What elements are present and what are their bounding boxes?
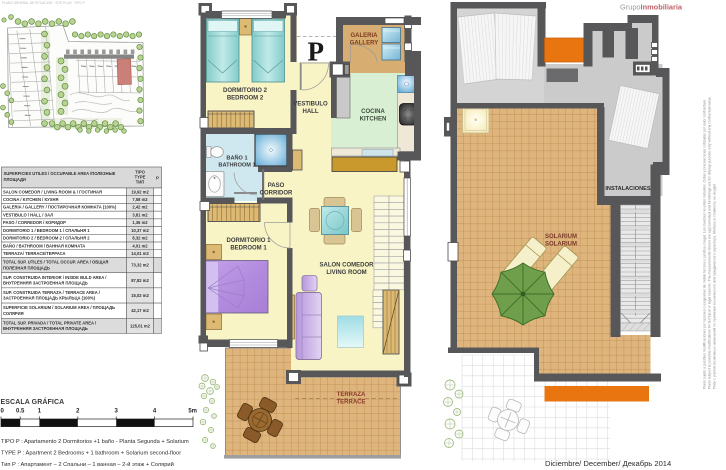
svg-text:BATHROOM 1: BATHROOM 1 (218, 163, 255, 169)
svg-text:СОЛЯРИЯ: СОЛЯРИЯ (3, 311, 24, 316)
svg-text:SUP. CONSTRUIDA INTERIOR / INS: SUP. CONSTRUIDA INTERIOR / INSIDE BULD A… (3, 275, 107, 280)
svg-text:4: 4 (153, 409, 157, 415)
svg-text:TYPE P : Apartment 2 Bedrooms: TYPE P : Apartment 2 Bedrooms + 1 bathro… (1, 451, 181, 457)
svg-text:ESCALA GRÁFICA: ESCALA GRÁFICA (1, 397, 65, 406)
svg-text:0.5: 0.5 (16, 409, 25, 415)
svg-text:TOTAL SUP. UTILES / TOTAL OCCU: TOTAL SUP. UTILES / TOTAL OCCUP. AREA / … (3, 260, 108, 265)
svg-text:BEDROOM 1: BEDROOM 1 (230, 246, 267, 252)
svg-text:HALL: HALL (303, 109, 319, 115)
svg-text:BEDROOM 2: BEDROOM 2 (227, 96, 264, 102)
svg-text:14,01 m2: 14,01 m2 (131, 251, 149, 256)
svg-text:4,01 m2: 4,01 m2 (132, 243, 148, 248)
svg-text:SUPERFICIE SOLARIUM / SOLARI: SUPERFICIE SOLARIUM / SOLARIUM AREA / ПЛ… (3, 305, 115, 310)
svg-text:PLANO GENERAL DE SITUACION · S: PLANO GENERAL DE SITUACION · SITE PLAN ·… (2, 1, 85, 5)
svg-text:ВНУТРЕННЯЯ ЗАСТРОЕННАЯ ПЛОЩАДЬ: ВНУТРЕННЯЯ ЗАСТРОЕННАЯ ПЛОЩАДЬ (3, 326, 88, 331)
svg-text:PASO: PASO (268, 183, 285, 189)
svg-text:1,36 m2: 1,36 m2 (132, 220, 148, 225)
svg-text:2,42 m2: 2,42 m2 (132, 205, 148, 210)
svg-text:Plans subject to possible modi: Plans subject to possible modifications … (708, 96, 712, 389)
svg-text:DORMITORIO 2 / BEDROOM 2 / СПА: DORMITORIO 2 / BEDROOM 2 / СПАЛЬНЯ 2 (3, 236, 90, 241)
svg-text:SALON COMEDOR / LIVING ROOM &: SALON COMEDOR / LIVING ROOM & / ГОСТИНАЯ (3, 189, 102, 194)
svg-text:ТИП: ТИП (136, 180, 145, 185)
svg-text:VESTIBULO / HALL / ЗАЛ: VESTIBULO / HALL / ЗАЛ (3, 212, 53, 217)
svg-text:BAÑO 1: BAÑO 1 (226, 155, 247, 162)
svg-text:Diciembre/ December/ Декабрь: Diciembre/ December/ Декабрь 2014 (545, 459, 671, 468)
svg-text:ПОЛЕЗНАЯ ПЛОЩАДЬ: ПОЛЕЗНАЯ ПЛОЩАДЬ (3, 265, 50, 270)
svg-text:ПЛОЩАДИ: ПЛОЩАДИ (4, 177, 26, 182)
svg-text:15,02 m2: 15,02 m2 (131, 293, 149, 298)
svg-text:P: P (308, 37, 325, 67)
svg-text:DORMITORIO 2: DORMITORIO 2 (223, 88, 268, 94)
svg-text:TIPO P : Apartamento 2 Dormito: TIPO P : Apartamento 2 Dormitorios +1 ba… (1, 439, 189, 445)
svg-text:Plano sujeto a posibles modifi: Plano sujeto a posibles modificaciones p… (703, 99, 707, 389)
svg-text:1: 1 (38, 409, 42, 415)
svg-text:PASO / CORREDOR / КОРИДОР: PASO / CORREDOR / КОРИДОР (3, 220, 66, 225)
svg-text:CORRIDOR: CORRIDOR (260, 191, 293, 197)
svg-text:GALLERY: GALLERY (350, 41, 378, 47)
svg-text:GrupoInmobiliaria: GrupoInmobiliaria (620, 3, 683, 12)
svg-text:План с учетом возможных измене: План с учетом возможных изменений по при… (713, 183, 717, 389)
svg-text:125,01 m2: 125,01 m2 (130, 323, 150, 328)
svg-text:SOLARIUM: SOLARIUM (545, 242, 577, 248)
svg-text:Тип P : Апартамент – 2 Спальни: Тип P : Апартамент – 2 Спальни – 1 ванна… (1, 461, 174, 468)
svg-text:8,32 m2: 8,32 m2 (132, 236, 148, 241)
svg-text:P: P (156, 176, 159, 181)
svg-text:5m: 5m (188, 409, 197, 415)
svg-text:73,32 m2: 73,32 m2 (131, 263, 149, 268)
svg-text:BAÑO / BATHROOM / ВАННАЯ КОМ: BAÑO / BATHROOM / ВАННАЯ КОМНАТА (3, 243, 85, 248)
svg-text:VESTIBULO: VESTIBULO (293, 102, 328, 108)
svg-text:ЗАСТРОЕННАЯ ПЛОЩАДЬ КРЫЛЬЦА (1: ЗАСТРОЕННАЯ ПЛОЩАДЬ КРЫЛЬЦА (100%) (3, 296, 96, 301)
svg-text:GALERIA / GALLERY / ПОСТИРОЧНА: GALERIA / GALLERY / ПОСТИРОЧНАЯ КОМНАТА … (3, 205, 117, 210)
svg-text:19,92 m2: 19,92 m2 (131, 189, 149, 194)
svg-text:LIVING ROOM: LIVING ROOM (326, 270, 366, 276)
svg-text:42,17 m2: 42,17 m2 (131, 308, 149, 313)
svg-text:KITCHEN: KITCHEN (360, 117, 387, 123)
svg-text:7,58 m2: 7,58 m2 (132, 197, 148, 202)
svg-text:0: 0 (1, 409, 5, 415)
svg-text:INSTALACIONES: INSTALACIONES (605, 186, 651, 192)
svg-text:COCINA / KITCHEN / КУХНЯ: COCINA / KITCHEN / КУХНЯ (3, 197, 58, 202)
svg-text:SUP. CONSTRUIDA TERRAZA / TER: SUP. CONSTRUIDA TERRAZA / TERRACE AREA / (3, 290, 101, 295)
svg-text:SOLARIUM: SOLARIUM (545, 234, 577, 240)
svg-text:87,82 m2: 87,82 m2 (131, 278, 149, 283)
svg-text:TERRAZA: TERRAZA (337, 392, 366, 398)
svg-text:SALON COMEDOR: SALON COMEDOR (320, 263, 375, 269)
svg-text:3,81 m2: 3,81 m2 (132, 212, 148, 217)
svg-text:COCINA: COCINA (361, 109, 385, 115)
svg-text:TOTAL SUP. PRIVADA / TOTAL PRI: TOTAL SUP. PRIVADA / TOTAL PRIVATE AREA … (3, 320, 97, 325)
svg-text:GALERIA: GALERIA (351, 33, 379, 39)
svg-text:3: 3 (115, 409, 119, 415)
svg-text:SUPERFICIES UTILES / OCCUPABLE: SUPERFICIES UTILES / OCCUPABLE AREA /ПОЛ… (4, 171, 116, 176)
svg-text:DORMITORIO 1: DORMITORIO 1 (227, 238, 272, 244)
svg-text:ВНУТРЕННЯЯ ЗАСТРОЕННАЯ ПЛОЩАДЬ: ВНУТРЕННЯЯ ЗАСТРОЕННАЯ ПЛОЩАДЬ (3, 280, 88, 285)
svg-text:TERRAZA/ TERRACE/ТЕРРАСА: TERRAZA/ TERRACE/ТЕРРАСА (3, 251, 65, 256)
svg-text:2: 2 (76, 409, 80, 415)
svg-text:DORMITORIO 1 / BEDROOM 1 / СПА: DORMITORIO 1 / BEDROOM 1 / СПАЛЬНЯ 1 (3, 228, 90, 233)
svg-text:10,37 m2: 10,37 m2 (131, 228, 149, 233)
svg-text:TERRACE: TERRACE (336, 400, 365, 406)
